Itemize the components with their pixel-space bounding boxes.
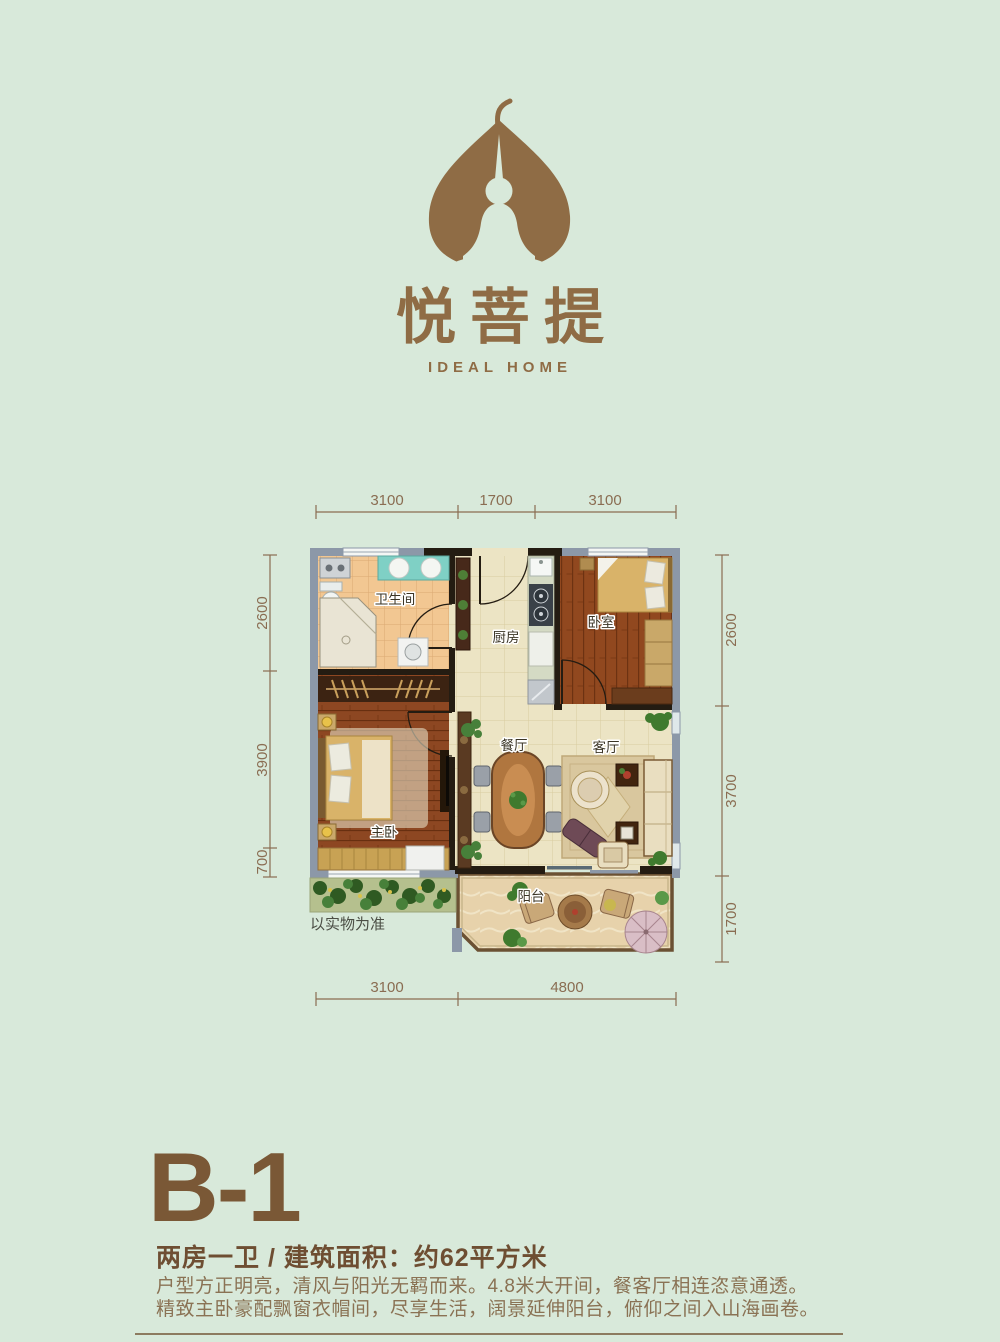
unit-description-line-1: 户型方正明亮，清风与阳光无羁而来。4.8米大开间，餐客厅相连恣意通透。 <box>156 1275 819 1298</box>
room-label-balcony: 阳台 <box>518 889 545 904</box>
unit-description: 户型方正明亮，清风与阳光无羁而来。4.8米大开间，餐客厅相连恣意通透。 精致主卧… <box>156 1275 819 1321</box>
brand-name-en: IDEAL HOME <box>0 359 1000 376</box>
dim-right-0: 2600 <box>723 613 740 646</box>
dim-bottom-1: 4800 <box>550 979 583 996</box>
flower-box <box>310 878 456 912</box>
room-label-dining: 餐厅 <box>501 738 528 753</box>
room-label-living: 客厅 <box>593 739 620 755</box>
dim-left-0: 2600 <box>254 596 271 629</box>
floor-plan: 3100 1700 3100 3100 4800 2600 3900 700 2… <box>245 478 745 1026</box>
dim-top-2: 3100 <box>588 492 621 509</box>
dim-right-1: 3700 <box>723 774 740 807</box>
brand-name-cn: 悦菩提 <box>0 286 1000 349</box>
dim-top-1: 1700 <box>479 492 512 509</box>
room-label-bathroom: 卫生间 <box>375 592 416 607</box>
room-label-kitchen: 厨房 <box>493 630 520 645</box>
umbrella-icon <box>625 911 667 953</box>
brand-logo: 悦菩提 IDEAL HOME <box>0 96 1000 376</box>
room-label-master-bedroom: 主卧 <box>371 825 398 840</box>
unit-description-line-2: 精致主卧豪配飘窗衣帽间，尽享生活，阔景延伸阳台，俯仰之间入山海画卷。 <box>156 1298 819 1321</box>
room-label-bedroom: 卧室 <box>588 614 615 630</box>
bodhi-leaf-icon <box>420 96 580 272</box>
dim-right-2: 1700 <box>723 902 740 935</box>
dim-top-0: 3100 <box>370 492 403 509</box>
dim-left-2: 700 <box>254 849 271 874</box>
unit-summary: 两房一卫 / 建筑面积：约62平方米 <box>156 1238 548 1274</box>
disclaimer-note: 以实物为准 <box>310 916 385 933</box>
unit-code-title: B-1 <box>148 1138 300 1236</box>
dim-bottom-0: 3100 <box>370 979 403 996</box>
flyer-page: 悦菩提 IDEAL HOME <box>0 0 1000 1342</box>
dim-left-1: 3900 <box>254 743 271 776</box>
divider-rule <box>135 1333 843 1335</box>
